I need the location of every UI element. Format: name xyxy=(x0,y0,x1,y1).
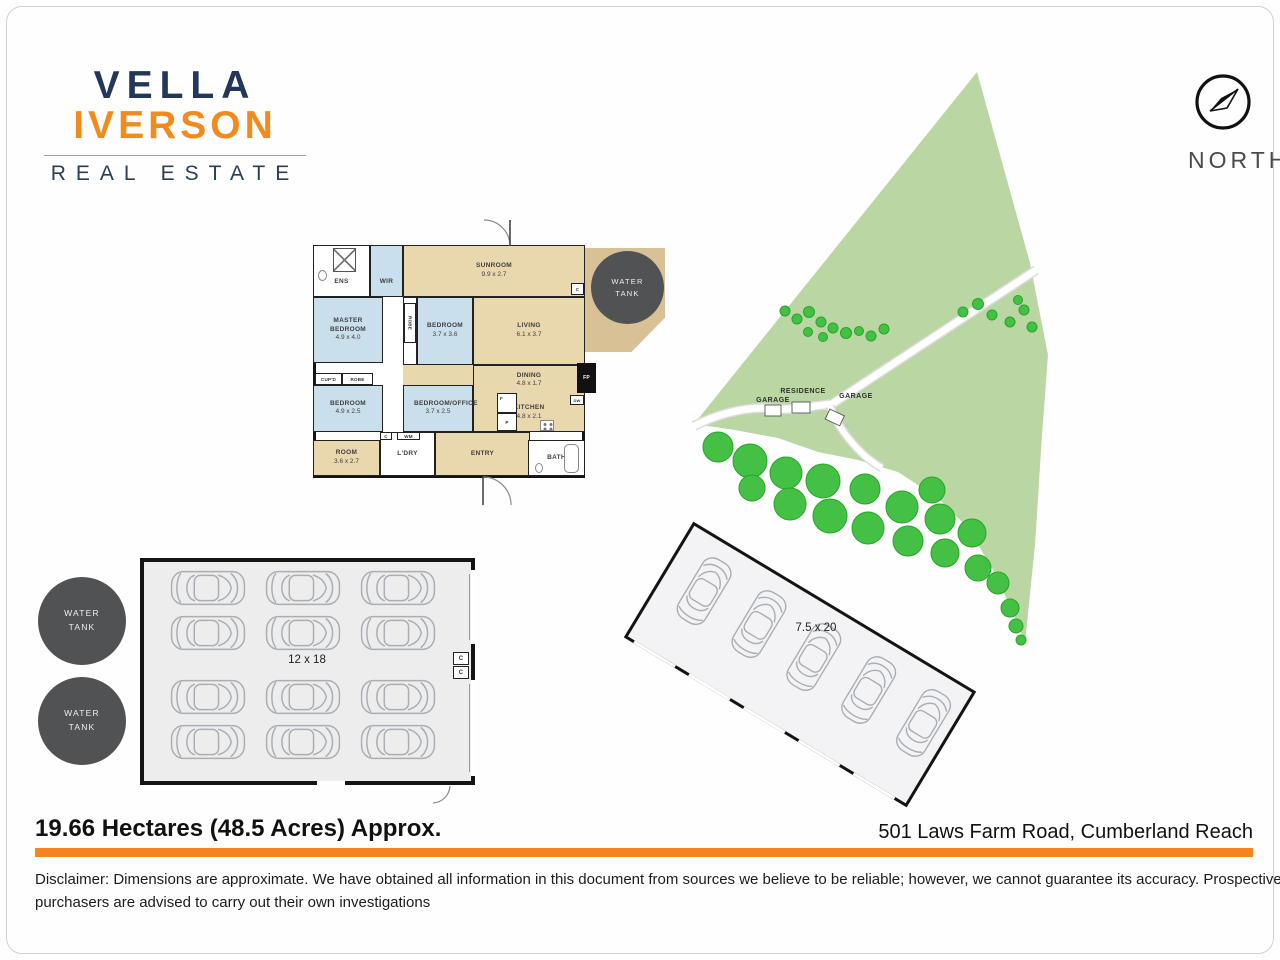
car-icon xyxy=(170,570,246,606)
washing-machine: WM xyxy=(397,432,420,440)
carport-opening xyxy=(743,706,786,733)
car-icon xyxy=(265,615,341,651)
entry-door-arc xyxy=(482,476,512,506)
shed-door-arc xyxy=(432,785,452,805)
disclaimer-line-2: purchasers are advised to carry out thei… xyxy=(35,891,1280,914)
laundry-cupboard: C xyxy=(380,432,392,440)
bathtub-icon xyxy=(564,444,579,473)
property-area-title: 19.66 Hectares (48.5 Acres) Approx. xyxy=(35,815,441,843)
room-master-bedroom: MASTER BEDROOM 4.9 x 4.0 xyxy=(313,297,383,363)
flyer-page: VELLA IVERSON REAL ESTATE NORTH xyxy=(0,0,1280,960)
water-tank-label: WATER xyxy=(64,607,100,621)
robe-box: ROBE xyxy=(342,373,373,385)
carport-opening xyxy=(688,673,731,700)
car-icon xyxy=(360,570,436,606)
brand-name-bottom: IVERSON xyxy=(40,105,310,148)
map-label-residence: RESIDENCE xyxy=(780,388,825,395)
carport-opening xyxy=(798,739,841,766)
corridor xyxy=(403,365,473,385)
room-living: LIVING 6.1 x 3.7 xyxy=(473,297,585,365)
water-tank-1: WATER TANK xyxy=(38,577,126,665)
logo-divider xyxy=(44,155,306,156)
carport-opening xyxy=(853,772,896,799)
water-tank-2: WATER TANK xyxy=(38,677,126,765)
water-tank-label: WATER xyxy=(64,707,100,721)
car-icon xyxy=(170,615,246,651)
north-compass: NORTH xyxy=(1188,70,1258,174)
water-tank-label: WATER xyxy=(611,276,643,288)
water-tank-label: TANK xyxy=(615,288,639,300)
car-icon xyxy=(265,679,341,715)
stove-icon xyxy=(540,420,554,431)
room-bedroom-office: BEDROOM/OFFICE 3.7 x 2.5 xyxy=(403,385,473,432)
toilet-icon xyxy=(535,463,543,473)
shed-dims-label: 12 x 18 xyxy=(262,654,352,666)
shed-door-opening xyxy=(471,680,475,776)
car-icon xyxy=(360,724,436,760)
shed-door-opening xyxy=(317,781,345,785)
shed-door-leaf xyxy=(469,574,471,640)
north-label: NORTH xyxy=(1188,147,1258,174)
water-tank-house: WATER TANK xyxy=(591,251,664,324)
shed-floorplan: 12 x 18 xyxy=(140,558,475,785)
cupboard-living: C xyxy=(571,283,584,295)
pantry-box: P xyxy=(497,413,517,431)
carport-dims-label: 7.5 x 20 xyxy=(770,622,862,634)
room-entry: ENTRY xyxy=(435,432,530,476)
accent-divider xyxy=(35,848,1253,857)
shower-icon xyxy=(333,248,356,272)
water-tank-label: TANK xyxy=(69,621,96,635)
map-label-garage-2: GARAGE xyxy=(839,393,873,400)
sunroom-door-arc xyxy=(483,219,511,247)
disclaimer-text: Disclaimer: Dimensions are approximate. … xyxy=(35,868,1280,915)
toilet-icon xyxy=(318,270,327,281)
car-icon xyxy=(265,570,341,606)
fridge-box: F xyxy=(497,393,517,413)
disclaimer-line-1: Disclaimer: Dimensions are approximate. … xyxy=(35,868,1280,891)
cupboard-box: CUP'D xyxy=(315,373,342,385)
room-kitchen: KITCHEN 4.8 x 2.1 xyxy=(473,395,585,432)
car-icon xyxy=(836,650,902,729)
room-dining: DINING 4.8 x 1.7 xyxy=(473,365,585,395)
shed-door-leaf xyxy=(469,684,471,772)
room-wir: WIR xyxy=(370,245,403,297)
car-icon xyxy=(265,724,341,760)
car-icon xyxy=(671,552,737,631)
shed-door-opening xyxy=(471,570,475,644)
brand-logo: VELLA IVERSON REAL ESTATE xyxy=(40,66,310,186)
robe-vertical: ROBE xyxy=(404,303,416,343)
car-icon xyxy=(890,683,956,762)
room-room: ROOM 3.6 x 2.7 xyxy=(313,440,380,476)
water-tank-label: TANK xyxy=(69,721,96,735)
brand-tagline: REAL ESTATE xyxy=(40,162,310,186)
property-address: 501 Laws Farm Road, Cumberland Reach xyxy=(878,821,1253,844)
brand-name-top: VELLA xyxy=(40,66,310,105)
shed-cupboard-2: C xyxy=(453,666,469,679)
room-bedroom-3: BEDROOM 4.9 x 2.5 xyxy=(313,385,383,432)
shed-cupboard-1: C xyxy=(453,652,469,665)
car-icon xyxy=(360,615,436,651)
room-bedroom-2: BEDROOM 3.7 x 3.6 xyxy=(417,297,473,365)
car-icon xyxy=(170,679,246,715)
car-icon xyxy=(360,679,436,715)
map-label-garage-1: GARAGE xyxy=(756,397,790,404)
dishwasher-box: DW xyxy=(570,395,584,405)
compass-icon xyxy=(1191,70,1255,134)
room-sunroom: SUNROOM 9.9 x 2.7 xyxy=(403,245,585,297)
fireplace-box: FP xyxy=(577,363,596,393)
carport-opening xyxy=(633,640,676,667)
car-icon xyxy=(170,724,246,760)
